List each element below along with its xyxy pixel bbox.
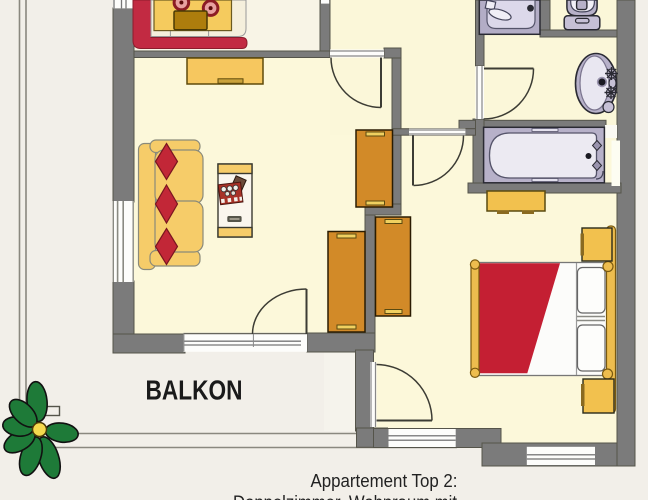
- svg-text:BALKON: BALKON: [146, 375, 243, 406]
- svg-text:Appartement Top 2:: Appartement Top 2:: [311, 471, 458, 491]
- svg-text:Doppelzimmer, Wohnraum mit: Doppelzimmer, Wohnraum mit: [233, 492, 457, 500]
